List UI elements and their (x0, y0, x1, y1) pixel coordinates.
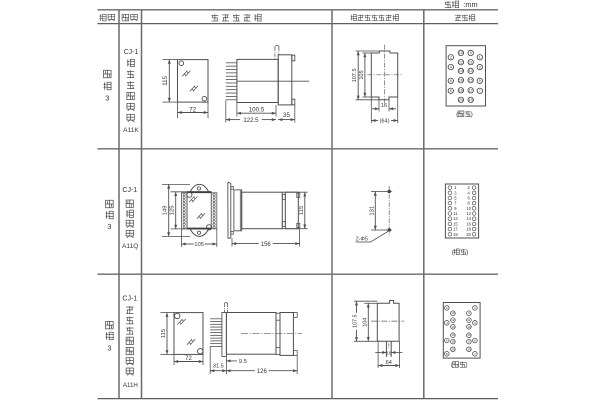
svg-text:12: 12 (451, 318, 455, 322)
svg-text:126: 126 (257, 369, 268, 375)
svg-text:(: ( (452, 250, 454, 256)
svg-text:10: 10 (451, 311, 455, 315)
svg-text:5: 5 (474, 339, 476, 343)
svg-text:CJ-1: CJ-1 (122, 187, 137, 194)
svg-text:20: 20 (451, 347, 455, 351)
svg-text:11: 11 (467, 318, 470, 322)
svg-text:18: 18 (451, 340, 455, 344)
svg-text:19: 19 (467, 347, 471, 351)
svg-text:20: 20 (466, 232, 471, 237)
svg-text:131: 131 (369, 206, 375, 216)
svg-text:156: 156 (261, 242, 272, 248)
svg-text:6: 6 (450, 79, 452, 83)
svg-text:115: 115 (299, 206, 305, 215)
svg-text:3: 3 (479, 65, 481, 69)
svg-text:16: 16 (451, 333, 455, 337)
svg-text:1: 1 (474, 306, 476, 310)
svg-text:72: 72 (185, 356, 192, 362)
svg-text:5: 5 (479, 79, 481, 83)
svg-text:10: 10 (459, 51, 463, 55)
svg-text:105: 105 (359, 70, 365, 79)
svg-text:12: 12 (459, 60, 463, 64)
svg-text:3: 3 (107, 344, 111, 353)
svg-text:13: 13 (467, 325, 471, 329)
svg-text:72: 72 (189, 106, 196, 113)
svg-text:20: 20 (459, 98, 463, 102)
svg-text:17: 17 (469, 89, 473, 93)
svg-text:13: 13 (469, 69, 473, 73)
svg-text:115: 115 (162, 75, 169, 85)
svg-text:16: 16 (459, 78, 463, 82)
svg-text:64: 64 (386, 360, 392, 366)
svg-text:9.5: 9.5 (239, 359, 247, 365)
svg-text:3: 3 (107, 222, 111, 231)
svg-text:149: 149 (163, 206, 169, 216)
svg-text:107.5: 107.5 (352, 68, 358, 82)
svg-text:7: 7 (479, 89, 481, 93)
svg-text:104: 104 (362, 318, 368, 327)
svg-text::mm: :mm (463, 0, 477, 9)
svg-text:8: 8 (446, 352, 448, 356)
svg-text:105: 105 (194, 242, 204, 248)
svg-text:19: 19 (469, 98, 473, 102)
svg-text:11: 11 (469, 60, 473, 64)
svg-text:100.5: 100.5 (249, 106, 265, 113)
svg-text:9: 9 (470, 51, 472, 55)
svg-text:CJ-1: CJ-1 (122, 295, 137, 302)
svg-text:16: 16 (386, 350, 392, 355)
svg-text:15: 15 (467, 333, 471, 337)
svg-text:15: 15 (469, 78, 473, 82)
svg-text:115: 115 (161, 329, 167, 338)
svg-text:6: 6 (446, 339, 448, 343)
svg-text:16: 16 (381, 103, 387, 109)
svg-text:17: 17 (467, 340, 471, 344)
svg-text:3: 3 (105, 93, 109, 102)
svg-text:4: 4 (446, 321, 448, 325)
svg-text:14: 14 (459, 69, 463, 73)
svg-text:(64): (64) (380, 119, 390, 125)
svg-text:): ) (466, 250, 468, 256)
svg-text:4: 4 (450, 65, 452, 69)
svg-text:2: 2 (446, 306, 448, 310)
svg-text:9: 9 (468, 311, 470, 315)
svg-text:A11H: A11H (123, 382, 138, 389)
svg-text:): ) (471, 112, 473, 118)
svg-text:A11K: A11K (123, 127, 139, 134)
svg-text:18: 18 (459, 89, 463, 93)
svg-text:): ) (466, 363, 468, 369)
svg-text:107.5: 107.5 (352, 315, 358, 329)
svg-text:14: 14 (451, 325, 455, 329)
svg-text:31.5: 31.5 (213, 364, 224, 370)
svg-text:122.5: 122.5 (243, 118, 259, 124)
svg-text:A11Q: A11Q (122, 243, 138, 250)
svg-text:7: 7 (474, 352, 476, 356)
svg-text:125: 125 (170, 206, 176, 216)
svg-text:3: 3 (474, 321, 476, 325)
svg-text:35: 35 (283, 112, 290, 119)
svg-text:1: 1 (479, 56, 481, 60)
svg-text:8: 8 (450, 89, 452, 93)
svg-text:19: 19 (453, 232, 458, 237)
svg-text:CJ-1: CJ-1 (124, 49, 139, 56)
svg-text:2: 2 (450, 56, 452, 60)
